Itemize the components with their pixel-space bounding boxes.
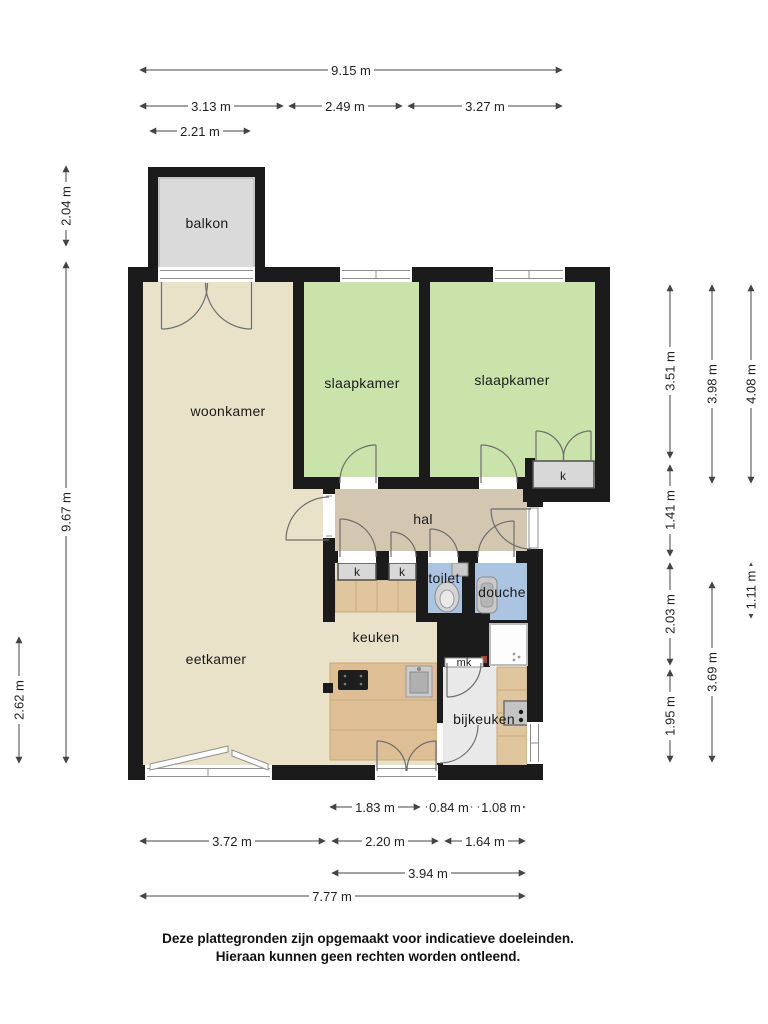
svg-text:1.08 m: 1.08 m	[481, 800, 521, 815]
wall-slaap1-slaap2	[419, 282, 430, 477]
woonkamer-floor	[143, 282, 304, 765]
woonkamer-label: woonkamer	[189, 403, 265, 419]
svg-text:1.64 m: 1.64 m	[465, 834, 505, 849]
dim-bottom-mk: 0.84 m	[426, 799, 472, 815]
svg-text:1.83 m: 1.83 m	[355, 800, 395, 815]
svg-text:2.62 m: 2.62 m	[12, 680, 27, 720]
balkon-wall-left	[148, 167, 158, 270]
svg-text:0.84 m: 0.84 m	[429, 800, 469, 815]
svg-text:3.72 m: 3.72 m	[212, 834, 252, 849]
dim-bottom-bijkeuken: 1.64 m	[445, 833, 525, 849]
bijkeuken-label: bijkeuken	[453, 711, 515, 727]
kast-slaapkamer-label: k	[560, 469, 567, 483]
svg-text:3.13 m: 3.13 m	[191, 99, 231, 114]
svg-text:3.27 m: 3.27 m	[465, 99, 505, 114]
mk-label: mk	[457, 657, 472, 669]
dim-left-eetkamer: 2.62 m	[11, 637, 27, 763]
dim-right-sanitair: 2.03 m	[662, 563, 678, 665]
footer: Deze plattegronden zijn opgemaakt voor i…	[162, 931, 574, 964]
svg-text:4.08 m: 4.08 m	[744, 364, 759, 404]
wall-woon-slaap1	[293, 282, 304, 477]
window-bijkeuken	[527, 722, 543, 764]
wall-k2-toilet	[416, 551, 428, 622]
balkon-wall-top	[148, 167, 265, 177]
svg-text:2.20 m: 2.20 m	[365, 834, 405, 849]
dim-top-slaapkamer1: 2.49 m	[289, 98, 402, 114]
wall-step-right	[523, 488, 610, 502]
svg-text:1.41 m: 1.41 m	[663, 490, 678, 530]
shower-tray	[490, 624, 527, 665]
dim-top-balkon: 2.21 m	[150, 123, 250, 139]
svg-text:2.04 m: 2.04 m	[59, 186, 74, 226]
keuken-label: keuken	[353, 629, 400, 645]
douche-label: douche	[478, 584, 526, 600]
floorplan-svg: balkon woonkamer slaapkamer slaapkamer h…	[0, 0, 768, 1024]
eetkamer-label: eetkamer	[186, 651, 247, 667]
dim-right-toilet: 1.11 m	[743, 563, 759, 618]
slaapkamer1-label: slaapkamer	[324, 375, 399, 391]
svg-text:1.11 m: 1.11 m	[744, 571, 759, 610]
dim-bottom-tray: 1.08 m	[478, 799, 525, 815]
cooktop	[338, 670, 368, 690]
svg-text:3.51 m: 3.51 m	[663, 351, 678, 391]
wall-toilet-douche	[462, 551, 475, 622]
toilet-label: toilet	[428, 570, 459, 586]
wall-eetkamer-keuken	[323, 551, 335, 622]
dim-right-slaapkamer: 3.51 m	[662, 285, 678, 458]
dim-left-full: 9.67 m	[58, 262, 74, 763]
svg-text:7.77 m: 7.77 m	[312, 889, 352, 904]
svg-text:9.15 m: 9.15 m	[331, 63, 371, 78]
window-slaapkamer1	[340, 267, 412, 282]
hal-label: hal	[413, 511, 433, 527]
footer-line1: Deze plattegronden zijn opgemaakt voor i…	[162, 931, 574, 946]
window-slaapkamer2	[493, 267, 565, 282]
dim-right-breedte: 4.08 m	[743, 285, 759, 483]
dim-bottom-counter: 1.83 m	[330, 799, 420, 815]
sink-tap	[417, 667, 421, 671]
dim-right-achter: 3.69 m	[704, 582, 720, 762]
svg-text:3.69 m: 3.69 m	[705, 652, 720, 692]
footer-line2: Hieraan kunnen geen rechten worden ontle…	[216, 949, 521, 964]
svg-text:9.67 m: 9.67 m	[59, 492, 74, 532]
dim-top-slaapkamer2: 3.27 m	[408, 98, 562, 114]
dim-right-slaapkamer-buiten: 3.98 m	[704, 285, 720, 483]
balkon-wall-right	[255, 167, 265, 270]
slaapkamer2-label: slaapkamer	[474, 372, 549, 388]
dim-bottom-eetkamer: 3.72 m	[140, 833, 325, 849]
kast-hal-2-label: k	[399, 565, 406, 579]
wall-left	[128, 267, 143, 780]
svg-text:3.98 m: 3.98 m	[705, 364, 720, 404]
svg-text:1.95 m: 1.95 m	[663, 696, 678, 736]
svg-text:2.49 m: 2.49 m	[325, 99, 365, 114]
svg-text:2.21 m: 2.21 m	[180, 124, 220, 139]
dim-top-woonkamer: 3.13 m	[140, 98, 283, 114]
dim-bottom-keuken: 2.20 m	[332, 833, 438, 849]
dim-bottom-full: 7.77 m	[140, 888, 525, 904]
balkon-label: balkon	[185, 215, 228, 231]
floorplan-page: balkon woonkamer slaapkamer slaapkamer h…	[0, 0, 768, 1024]
dim-bottom-rechts: 3.94 m	[332, 865, 525, 881]
svg-text:3.94 m: 3.94 m	[408, 866, 448, 881]
dim-top-full: 9.15 m	[140, 62, 562, 78]
wall-stub	[323, 683, 333, 693]
kast-hal-1-label: k	[354, 565, 361, 579]
dim-left-balkon: 2.04 m	[58, 166, 74, 246]
dim-right-hal: 1.41 m	[662, 465, 678, 556]
wall-k1-k2	[376, 551, 389, 580]
dim-right-bijkeuken: 1.95 m	[662, 670, 678, 762]
svg-text:2.03 m: 2.03 m	[663, 594, 678, 634]
wall-right-upper	[595, 267, 610, 502]
